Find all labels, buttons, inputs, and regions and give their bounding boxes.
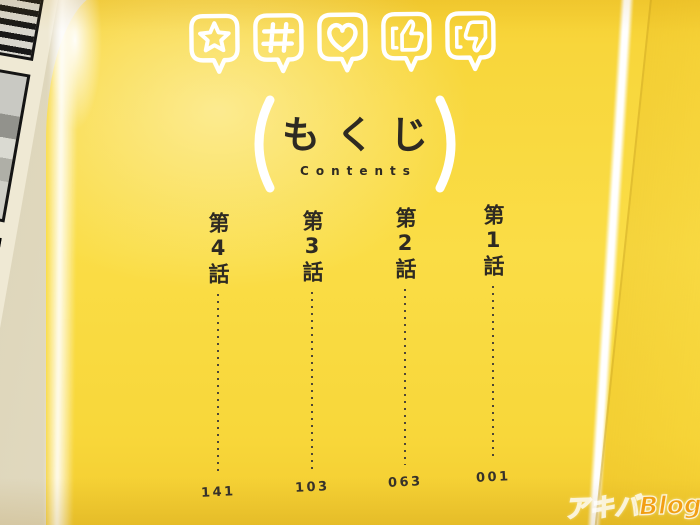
page-number: 001: [475, 469, 510, 486]
contents-title-block: もくじ Contents: [240, 94, 470, 178]
dotted-leader: [492, 286, 495, 460]
heart-bubble-icon: [316, 10, 370, 77]
page-content: もくじ Contents 第4話 141 第3話 103 第2話 063 第1話…: [0, 0, 700, 525]
dotted-leader: [311, 292, 314, 470]
page-number: 141: [200, 484, 235, 501]
dotted-leader: [404, 289, 407, 465]
akiba-blog-watermark: アキバBlog: [564, 485, 700, 525]
page-number: 103: [294, 479, 329, 496]
toc-entry-chapter-2: 第2話 063: [387, 207, 423, 490]
toc-entry-chapter-1: 第1話 001: [475, 204, 511, 485]
thumbs-up-bubble-icon: [380, 9, 434, 76]
thumbs-down-bubble-icon: [444, 8, 498, 75]
chapter-label: 第3話: [301, 210, 323, 285]
dotted-leader: [217, 294, 220, 475]
hashtag-bubble-icon: [252, 10, 306, 77]
chapter-label: 第1話: [482, 204, 504, 279]
star-bubble-icon: [188, 11, 242, 78]
left-parenthesis-icon: [240, 94, 282, 194]
page-number: 063: [387, 474, 422, 491]
chapter-label: 第2話: [394, 207, 416, 282]
chapter-label: 第4話: [207, 212, 229, 287]
toc-entry-chapter-4: 第4話 141: [200, 212, 236, 500]
photo-of-book-contents-page: もくじ Contents 第4話 141 第3話 103 第2話 063 第1話…: [0, 0, 700, 525]
toc-entry-chapter-3: 第3話 103: [294, 210, 330, 495]
sns-bubble-icons-row: [188, 8, 498, 77]
right-parenthesis-icon: [428, 94, 470, 194]
